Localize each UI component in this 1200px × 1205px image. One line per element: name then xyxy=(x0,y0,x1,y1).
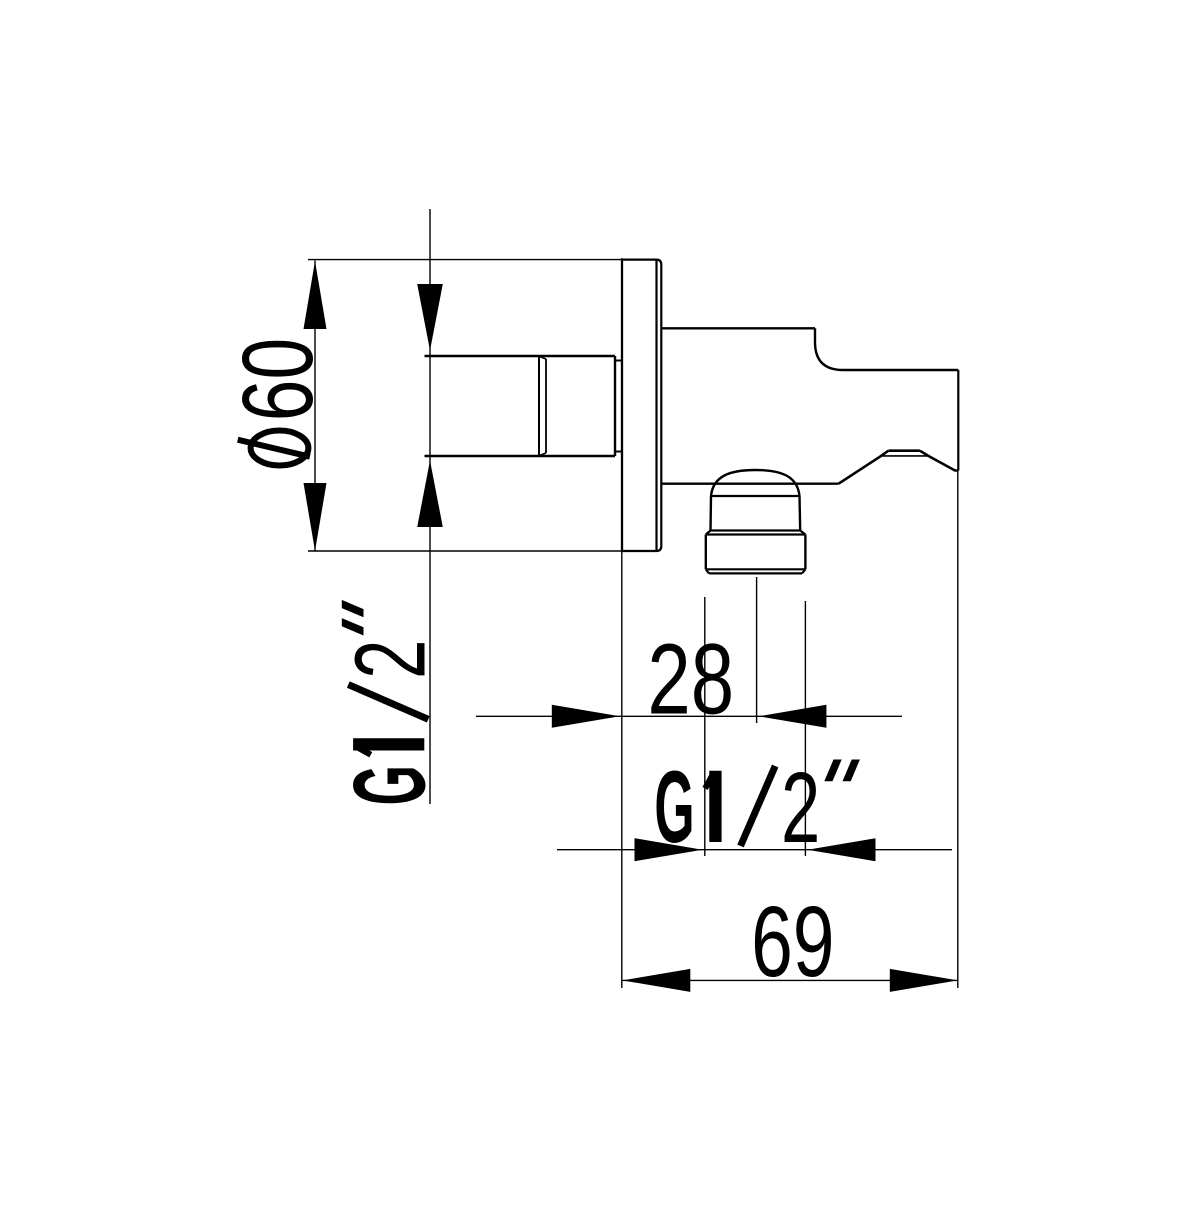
svg-text:28: 28 xyxy=(647,624,734,736)
svg-text:69: 69 xyxy=(751,885,834,997)
svg-text:60: 60 xyxy=(221,338,333,421)
